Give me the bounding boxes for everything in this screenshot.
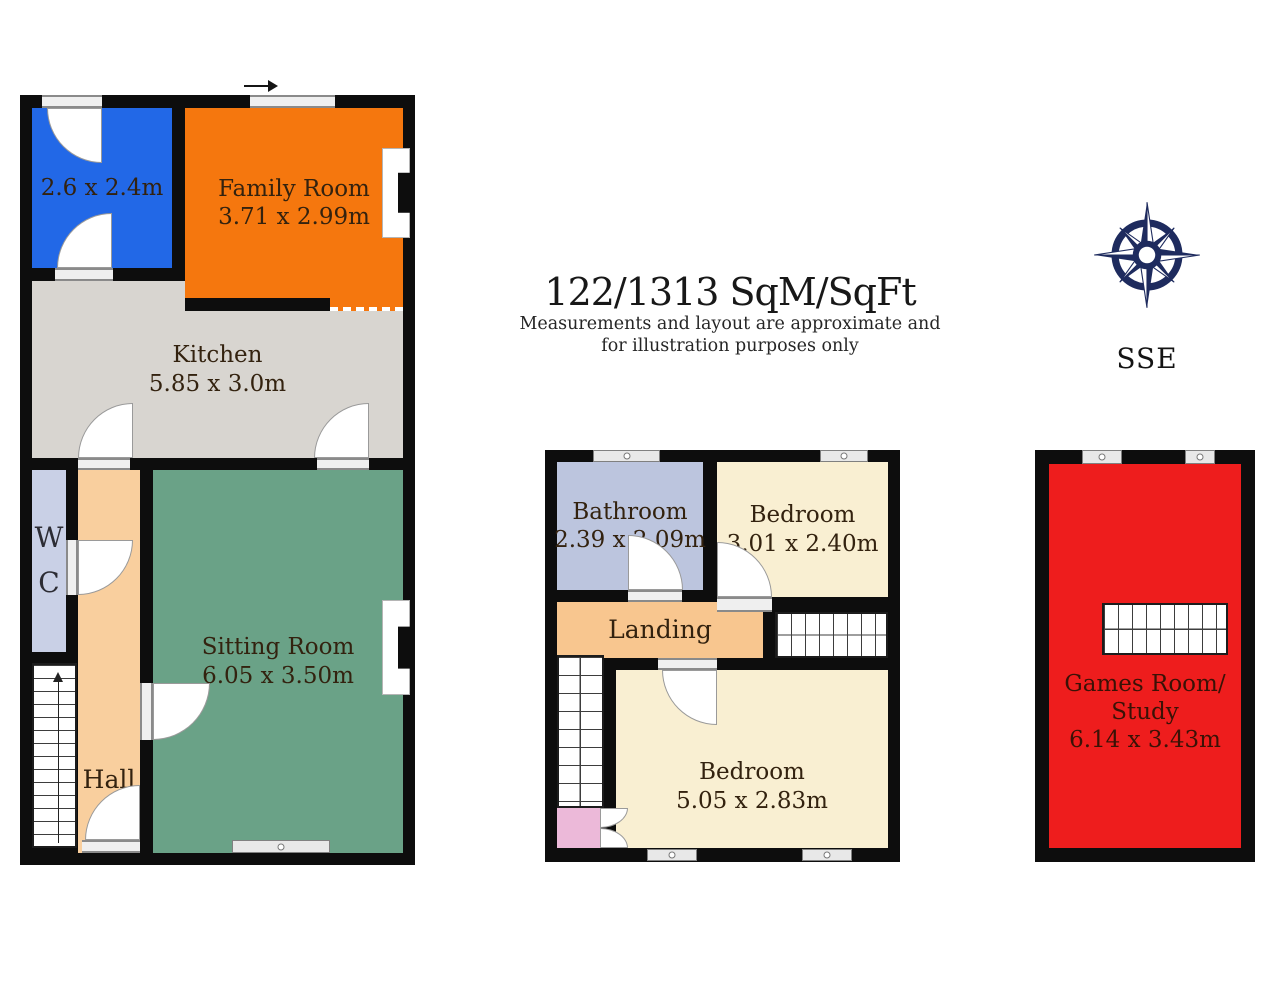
entrance-threshold: [250, 95, 335, 108]
door-sill: [55, 268, 113, 281]
door-sill: [78, 458, 130, 470]
room-name-label: C: [38, 561, 59, 606]
door-sill: [658, 658, 717, 670]
disclaimer-line: for illustration purposes only: [450, 336, 1010, 358]
floorplan-page: Kitchen 5.85 x 3.0m 2.6 x 2.4m Family Ro…: [0, 0, 1280, 999]
room-name-label: Kitchen: [173, 341, 263, 369]
window: [802, 849, 852, 861]
window: [820, 450, 868, 462]
entrance-arrow-icon: [244, 80, 278, 92]
door-sill: [628, 590, 682, 602]
door-sill: [66, 540, 78, 595]
room-name-label: Family Room: [218, 175, 370, 203]
chimney-recess: [382, 600, 410, 695]
room-name-label: Bathroom: [572, 498, 687, 526]
area-summary: 122/1313 SqM/SqFt Measurements and layou…: [450, 270, 1010, 358]
room-family-room: Family Room 3.71 x 2.99m: [185, 108, 403, 298]
door-sill: [42, 95, 102, 108]
ground-floor-plan: Kitchen 5.85 x 3.0m 2.6 x 2.4m Family Ro…: [20, 95, 415, 865]
room-name-label: Landing: [608, 615, 712, 646]
closet: [557, 808, 600, 848]
room-sitting-room: Sitting Room 6.05 x 3.50m: [153, 470, 403, 853]
staircase-up: [32, 663, 77, 848]
window: [1185, 450, 1215, 464]
room-dims-label: 3.71 x 2.99m: [218, 203, 370, 231]
room-dims-label: 6.14 x 3.43m: [1069, 726, 1221, 754]
room-name-label: Sitting Room: [202, 633, 355, 661]
room-name-label: Bedroom: [750, 501, 856, 529]
room-name-label: W: [35, 516, 64, 561]
chimney-recess: [382, 148, 410, 238]
open-threshold: [330, 298, 403, 311]
room-dims-label: 2.6 x 2.4m: [41, 174, 164, 202]
room-name-label: Bedroom: [699, 758, 805, 786]
compass-direction-label: SSE: [1092, 342, 1202, 375]
compass-rose-icon: [1092, 200, 1202, 310]
room-dims-label: 5.85 x 3.0m: [149, 370, 286, 398]
disclaimer-line: Measurements and layout are approximate …: [450, 314, 1010, 336]
room-name-label: Study: [1111, 698, 1179, 726]
wall-segment: [185, 298, 330, 311]
staircase-down: [1102, 603, 1228, 655]
window: [232, 840, 330, 853]
window: [647, 849, 697, 861]
room-bedroom-main: Bedroom 5.05 x 2.83m: [616, 670, 888, 848]
window: [1082, 450, 1122, 464]
room-games-room: Games Room/ Study 6.14 x 3.43m: [1049, 464, 1241, 848]
first-floor-plan: Bathroom 2.39 x 2.09m Bedroom 3.01 x 2.4…: [545, 450, 900, 862]
front-door-sill: [82, 840, 140, 853]
room-wc: W C: [32, 470, 66, 652]
window: [593, 450, 660, 462]
room-dims-label: 6.05 x 3.50m: [202, 662, 354, 690]
door-sill: [317, 458, 369, 470]
door-sill: [140, 683, 153, 740]
room-dims-label: 5.05 x 2.83m: [676, 787, 828, 815]
room-name-label: Games Room/: [1064, 670, 1225, 698]
top-floor-plan: Games Room/ Study 6.14 x 3.43m: [1035, 450, 1255, 862]
staircase-down: [557, 655, 604, 808]
staircase-landing: [775, 612, 888, 658]
total-area-label: 122/1313 SqM/SqFt: [450, 270, 1010, 314]
door-sill: [717, 597, 772, 612]
